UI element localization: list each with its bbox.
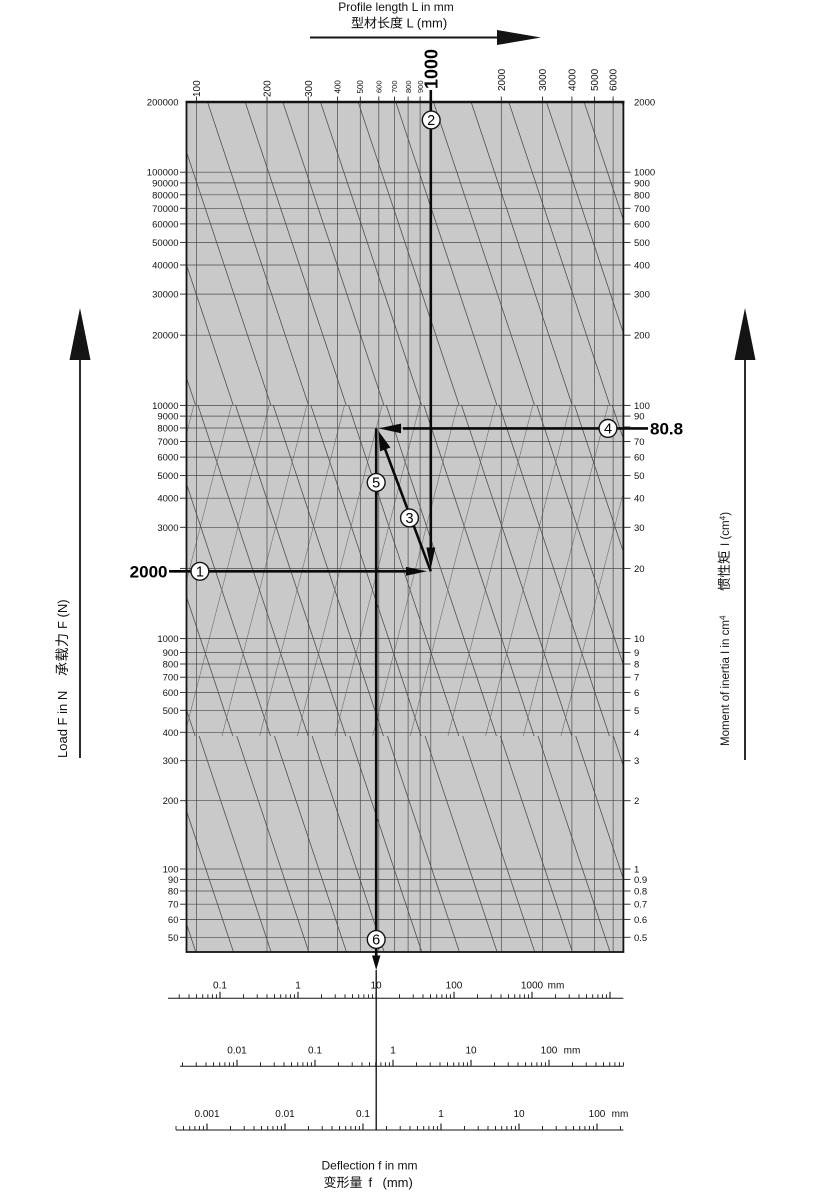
svg-text:80000: 80000 — [152, 190, 178, 201]
svg-text:5: 5 — [634, 706, 639, 717]
svg-text:70: 70 — [168, 900, 179, 911]
svg-text:0.1: 0.1 — [213, 981, 227, 992]
svg-text:10000: 10000 — [152, 401, 178, 412]
svg-text:30000: 30000 — [152, 290, 178, 301]
svg-text:60: 60 — [634, 453, 645, 464]
svg-text:7000: 7000 — [157, 437, 178, 448]
svg-text:1: 1 — [634, 865, 639, 876]
svg-text:mm: mm — [548, 981, 565, 992]
svg-text:90: 90 — [634, 412, 645, 423]
svg-text:mm: mm — [612, 1109, 629, 1120]
svg-text:600: 600 — [163, 688, 179, 699]
svg-text:0.1: 0.1 — [308, 1046, 322, 1057]
svg-text:400: 400 — [333, 80, 342, 94]
svg-text:1000: 1000 — [421, 49, 441, 89]
svg-text:500: 500 — [634, 238, 650, 249]
svg-text:f: f — [369, 1175, 373, 1190]
svg-text:3: 3 — [405, 511, 413, 527]
svg-text:0.6: 0.6 — [634, 915, 647, 926]
svg-text:500: 500 — [356, 80, 365, 94]
svg-text:6: 6 — [372, 933, 380, 949]
svg-text:70: 70 — [634, 437, 645, 448]
svg-text:40: 40 — [634, 494, 645, 505]
svg-text:300: 300 — [304, 80, 315, 97]
svg-text:6000: 6000 — [609, 68, 620, 91]
svg-text:90: 90 — [168, 875, 179, 886]
svg-text:0.01: 0.01 — [275, 1109, 295, 1120]
svg-text:1000: 1000 — [521, 981, 544, 992]
svg-text:100: 100 — [541, 1046, 558, 1057]
svg-text:1: 1 — [438, 1109, 444, 1120]
svg-text:L (mm): L (mm) — [407, 16, 448, 31]
svg-text:700: 700 — [634, 204, 650, 215]
svg-text:90000: 90000 — [152, 178, 178, 189]
svg-text:7: 7 — [634, 673, 639, 684]
svg-text:0.5: 0.5 — [634, 933, 647, 944]
svg-text:0.1: 0.1 — [356, 1109, 370, 1120]
svg-text:80.8: 80.8 — [650, 420, 683, 439]
svg-text:8: 8 — [634, 660, 639, 671]
svg-text:300: 300 — [634, 290, 650, 301]
svg-text:800: 800 — [404, 80, 413, 93]
svg-text:4: 4 — [634, 728, 639, 739]
svg-text:200: 200 — [263, 80, 274, 97]
svg-text:(mm): (mm) — [383, 1175, 413, 1190]
svg-text:100: 100 — [446, 981, 463, 992]
svg-text:900: 900 — [163, 648, 179, 659]
svg-text:200: 200 — [163, 796, 179, 807]
svg-text:0.9: 0.9 — [634, 875, 647, 886]
svg-text:100: 100 — [163, 865, 179, 876]
svg-text:8000: 8000 — [157, 424, 178, 435]
svg-text:Profile length L in mm: Profile length L in mm — [338, 0, 454, 14]
svg-text:6000: 6000 — [157, 453, 178, 464]
svg-text:40000: 40000 — [152, 261, 178, 272]
svg-text:50: 50 — [634, 471, 645, 482]
svg-text:Deflection f in mm: Deflection f in mm — [321, 1159, 417, 1173]
svg-text:20000: 20000 — [152, 331, 178, 342]
svg-text:100: 100 — [634, 401, 650, 412]
svg-text:70000: 70000 — [152, 204, 178, 215]
svg-text:5000: 5000 — [157, 471, 178, 482]
svg-text:1: 1 — [295, 981, 301, 992]
svg-text:Moment of inertia I in cm4: Moment of inertia I in cm4 — [718, 615, 733, 746]
svg-text:900: 900 — [634, 178, 650, 189]
svg-text:200: 200 — [634, 331, 650, 342]
svg-text:1000: 1000 — [634, 168, 655, 179]
svg-text:4000: 4000 — [568, 68, 579, 91]
svg-text:3000: 3000 — [157, 523, 178, 534]
svg-text:3000: 3000 — [538, 68, 549, 91]
svg-text:700: 700 — [390, 80, 399, 93]
svg-text:400: 400 — [634, 261, 650, 272]
svg-text:800: 800 — [163, 660, 179, 671]
svg-text:200000: 200000 — [147, 98, 179, 109]
svg-text:I (cm4): I (cm4) — [718, 512, 733, 546]
svg-text:800: 800 — [634, 190, 650, 201]
svg-text:mm: mm — [564, 1046, 581, 1057]
svg-text:0.001: 0.001 — [194, 1109, 219, 1120]
svg-text:2: 2 — [634, 796, 639, 807]
svg-text:100: 100 — [589, 1109, 606, 1120]
svg-text:1: 1 — [196, 565, 204, 581]
svg-text:1: 1 — [390, 1046, 396, 1057]
svg-text:0.01: 0.01 — [227, 1046, 247, 1057]
svg-text:50000: 50000 — [152, 238, 178, 249]
svg-text:400: 400 — [163, 728, 179, 739]
svg-text:60: 60 — [168, 915, 179, 926]
svg-text:2000: 2000 — [497, 68, 508, 91]
svg-text:2000: 2000 — [634, 98, 655, 109]
svg-text:300: 300 — [163, 756, 179, 767]
svg-text:30: 30 — [634, 523, 645, 534]
svg-text:9: 9 — [634, 648, 639, 659]
svg-text:0.8: 0.8 — [634, 887, 647, 898]
svg-text:50: 50 — [168, 933, 179, 944]
svg-text:F (N): F (N) — [55, 599, 70, 629]
svg-text:10: 10 — [634, 634, 645, 645]
svg-text:100000: 100000 — [147, 168, 179, 179]
svg-text:Load F in N: Load F in N — [55, 691, 70, 758]
svg-text:700: 700 — [163, 673, 179, 684]
svg-text:80: 80 — [168, 887, 179, 898]
svg-text:9000: 9000 — [157, 412, 178, 423]
svg-text:4000: 4000 — [157, 494, 178, 505]
svg-text:6: 6 — [634, 688, 639, 699]
svg-text:1000: 1000 — [157, 634, 178, 645]
svg-text:100: 100 — [192, 80, 203, 97]
svg-text:5000: 5000 — [590, 68, 601, 91]
svg-text:60000: 60000 — [152, 219, 178, 230]
svg-text:600: 600 — [375, 80, 384, 93]
svg-text:3: 3 — [634, 756, 639, 767]
svg-text:20: 20 — [634, 564, 645, 575]
svg-text:4: 4 — [604, 422, 612, 438]
svg-text:2000: 2000 — [130, 562, 168, 581]
svg-text:2: 2 — [427, 113, 435, 129]
svg-text:10: 10 — [465, 1046, 477, 1057]
svg-text:500: 500 — [163, 706, 179, 717]
svg-text:10: 10 — [513, 1109, 525, 1120]
svg-text:0.7: 0.7 — [634, 900, 647, 911]
svg-text:5: 5 — [372, 476, 380, 492]
svg-text:600: 600 — [634, 219, 650, 230]
